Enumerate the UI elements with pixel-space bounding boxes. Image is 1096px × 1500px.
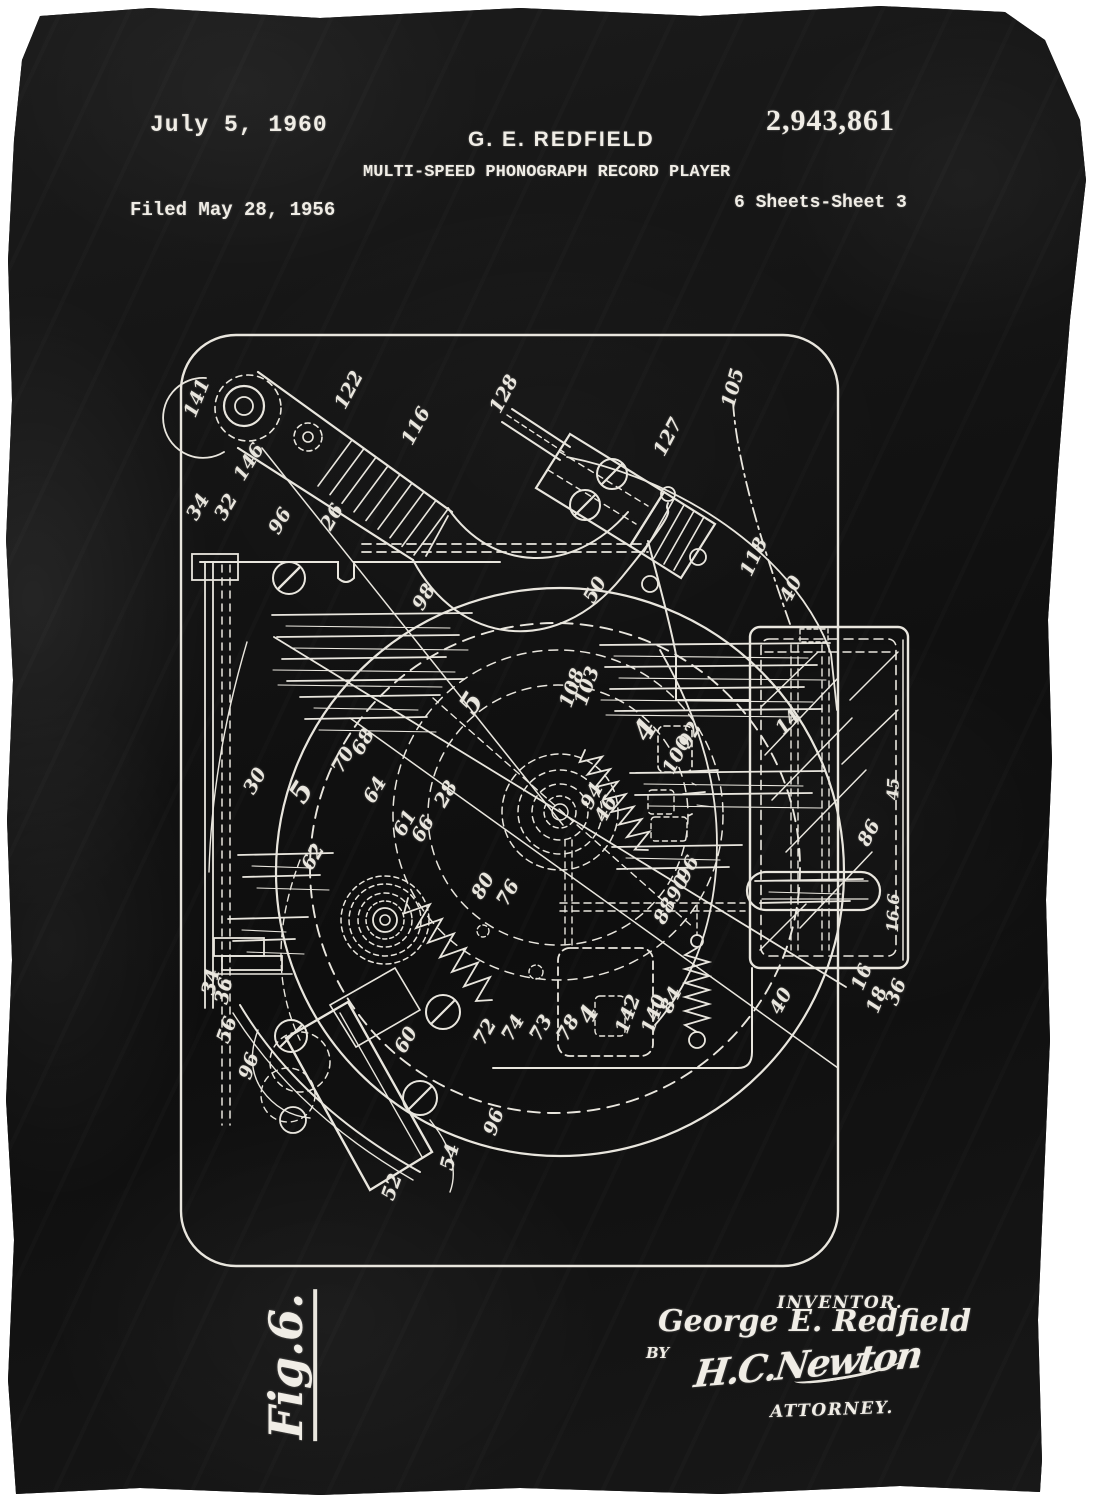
inventor-signature: George E. Redfield: [658, 1304, 971, 1339]
photo-background: July 5, 1960 G. E. REDFIELD 2,943,861 MU…: [0, 0, 1096, 1500]
patent-drawing: [0, 0, 1096, 1500]
by-label: BY: [646, 1344, 669, 1362]
figure-label: Fig.6.: [228, 1290, 348, 1440]
blanket: July 5, 1960 G. E. REDFIELD 2,943,861 MU…: [0, 0, 1096, 1500]
figure-label-text: Fig.6.: [259, 1289, 317, 1441]
